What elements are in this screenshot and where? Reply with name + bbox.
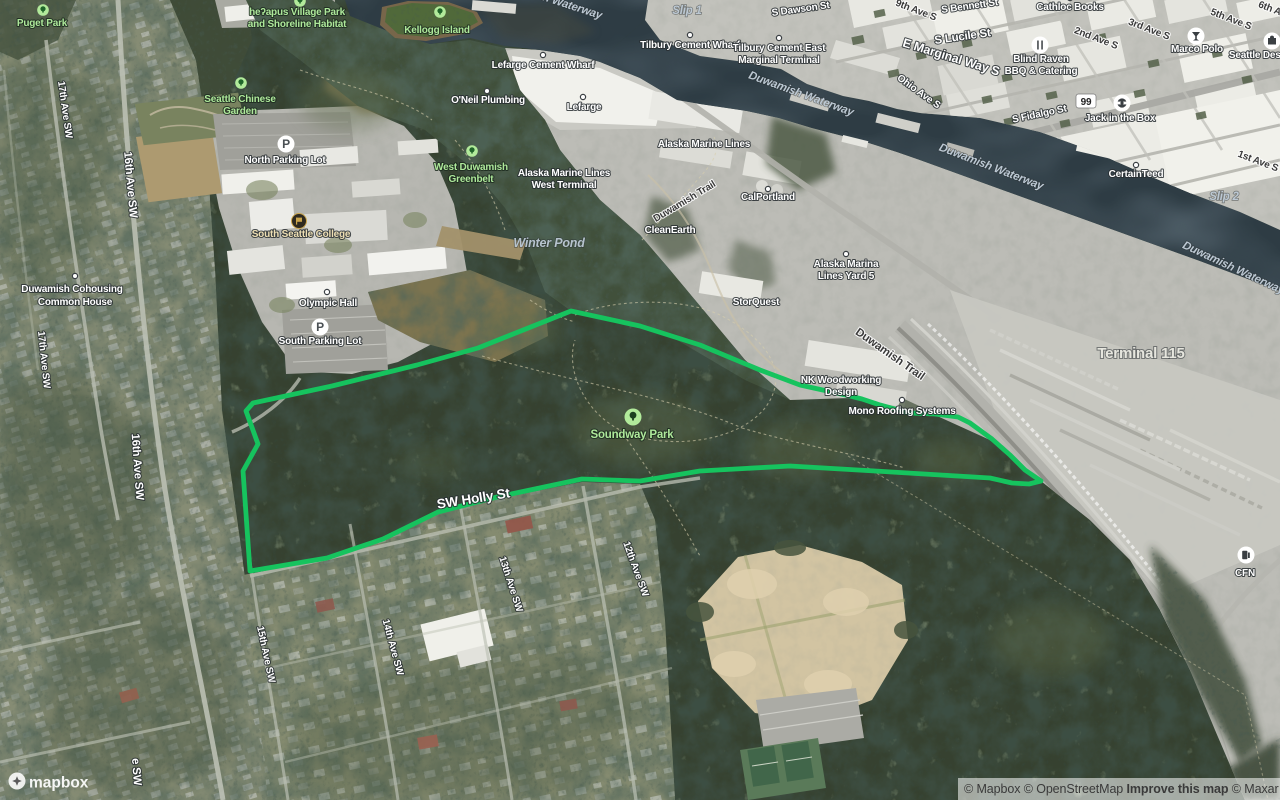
svg-text:Tilbury Cement East: Tilbury Cement East bbox=[733, 43, 827, 54]
svg-text:CleanEarth: CleanEarth bbox=[645, 225, 696, 236]
svg-text:Common House: Common House bbox=[38, 297, 113, 308]
svg-text:P: P bbox=[316, 320, 324, 334]
svg-text:99: 99 bbox=[1081, 97, 1092, 108]
svg-text:Lefarge Cement Wharf: Lefarge Cement Wharf bbox=[492, 60, 596, 71]
svg-text:Jack in the Box: Jack in the Box bbox=[1085, 113, 1156, 124]
svg-text:North Parking Lot: North Parking Lot bbox=[244, 155, 326, 166]
svg-text:Seattle Chinese: Seattle Chinese bbox=[204, 94, 276, 105]
svg-text:© Mapbox © OpenStreetMap Impr: © Mapbox © OpenStreetMap Improve this ma… bbox=[964, 782, 1279, 796]
svg-text:Design: Design bbox=[825, 387, 857, 398]
svg-text:Marco Polo: Marco Polo bbox=[1171, 44, 1223, 55]
svg-text:Lefarge: Lefarge bbox=[567, 102, 602, 113]
svg-text:West Terminal: West Terminal bbox=[532, 180, 597, 191]
svg-text:CalPortland: CalPortland bbox=[741, 192, 795, 203]
svg-text:e SW: e SW bbox=[129, 758, 143, 786]
svg-text:Terminal 115: Terminal 115 bbox=[1097, 345, 1184, 362]
svg-text:Slip 1: Slip 1 bbox=[672, 5, 701, 17]
svg-text:Greenbelt: Greenbelt bbox=[449, 174, 495, 185]
svg-text:Winter Pond: Winter Pond bbox=[513, 236, 585, 250]
svg-text:NK Woodworking: NK Woodworking bbox=[801, 375, 881, 386]
svg-text:West Duwamish: West Duwamish bbox=[434, 162, 508, 173]
svg-text:Kellogg Island: Kellogg Island bbox=[404, 25, 470, 36]
svg-text:Cathloc Books: Cathloc Books bbox=[1036, 2, 1104, 13]
svg-text:heʔapus Village Park: heʔapus Village Park bbox=[249, 7, 346, 18]
svg-text:Soundway Park: Soundway Park bbox=[590, 429, 674, 441]
svg-text:Blind Raven: Blind Raven bbox=[1013, 54, 1069, 65]
svg-text:Mono Roofing Systems: Mono Roofing Systems bbox=[848, 406, 956, 417]
svg-text:Alaska Marine Lines: Alaska Marine Lines bbox=[658, 139, 751, 150]
svg-text:O'Neil Plumbing: O'Neil Plumbing bbox=[451, 95, 525, 106]
svg-text:Garden: Garden bbox=[223, 106, 257, 117]
svg-text:P: P bbox=[282, 137, 290, 151]
svg-text:Lines Yard 5: Lines Yard 5 bbox=[818, 271, 875, 282]
svg-text:and Shoreline Habitat: and Shoreline Habitat bbox=[248, 19, 347, 30]
svg-text:CFN: CFN bbox=[1235, 568, 1255, 579]
svg-text:BBQ & Catering: BBQ & Catering bbox=[1005, 66, 1078, 77]
svg-text:Slip 2: Slip 2 bbox=[1209, 191, 1239, 203]
svg-text:CertainTeed: CertainTeed bbox=[1109, 169, 1164, 180]
svg-text:Puget Park: Puget Park bbox=[17, 18, 68, 29]
svg-text:Seattle Desig: Seattle Desig bbox=[1229, 50, 1280, 61]
svg-text:mapbox: mapbox bbox=[29, 775, 89, 792]
svg-text:South Parking Lot: South Parking Lot bbox=[279, 336, 363, 347]
svg-text:Tilbury Cement Wharf: Tilbury Cement Wharf bbox=[640, 40, 741, 51]
svg-text:South Seattle College: South Seattle College bbox=[252, 229, 351, 240]
svg-text:Duwamish Cohousing: Duwamish Cohousing bbox=[21, 284, 122, 295]
svg-text:StorQuest: StorQuest bbox=[733, 297, 780, 308]
svg-text:Olympic Hall: Olympic Hall bbox=[299, 298, 358, 309]
svg-text:Alaska Marina: Alaska Marina bbox=[814, 259, 879, 270]
svg-text:Alaska Marine Lines: Alaska Marine Lines bbox=[518, 168, 611, 179]
svg-text:Marginal Terminal: Marginal Terminal bbox=[738, 55, 820, 66]
